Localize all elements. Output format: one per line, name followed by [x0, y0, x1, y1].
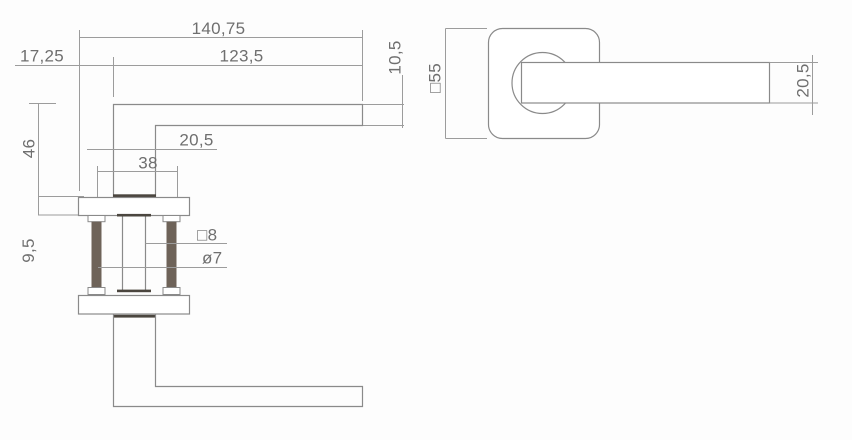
dim-screw-spacing-label: 38 [138, 154, 158, 173]
dim-rose-size-label: □55 [426, 63, 445, 93]
mounting-screw-left [88, 216, 105, 295]
dim-neck-width-label: 20,5 [179, 131, 213, 150]
dim-screw-spacing: 38 [98, 154, 178, 201]
dim-offset-and-lever-length: 17,25 123,5 [15, 47, 363, 66]
dim-offset-label: 17,25 [20, 47, 64, 66]
dim-bar-thickness-label: 10,5 [386, 40, 405, 74]
dim-rose-thickness-label: 9,5 [19, 238, 38, 263]
door-handle-technical-drawing: 140,75 17,25 123,5 10,5 46 9,5 [0, 0, 852, 440]
dim-bar-thickness: 10,5 [363, 40, 405, 128]
dim-rose-size: □55 [426, 29, 488, 139]
neck-plate-junction-bottom [113, 315, 156, 318]
technical-drawing-page: 140,75 17,25 123,5 10,5 46 9,5 [0, 0, 852, 440]
dim-height-to-rose-label: 46 [20, 139, 39, 159]
dim-neck-width: 20,5 [87, 131, 217, 150]
dim-lever-length-label: 123,5 [219, 47, 263, 66]
lower-lever-outline [114, 315, 363, 407]
mounting-screw-right [163, 216, 180, 295]
callout-spindle-square-label: □8 [197, 226, 217, 245]
callout-screw-diameter-label: ø7 [202, 249, 222, 268]
spindle [117, 214, 151, 292]
side-view: 140,75 17,25 123,5 10,5 46 9,5 [15, 19, 405, 407]
neck-plate-junction-top [113, 194, 156, 197]
dim-lever-width: 20,5 [770, 55, 819, 115]
dim-total-length-label: 140,75 [192, 19, 246, 38]
dim-lever-width-label: 20,5 [794, 63, 813, 97]
callout-screw-diameter: ø7 [98, 249, 227, 268]
lever-bar [522, 63, 770, 104]
dim-total-length: 140,75 [80, 19, 363, 38]
lever-outline [114, 105, 363, 198]
dim-height-chain: 46 9,5 [19, 104, 84, 263]
rose-plate-bottom [79, 296, 190, 315]
callout-spindle-square: □8 [146, 226, 228, 245]
front-view: □55 20,5 [426, 29, 819, 139]
rose-plate-top [79, 198, 190, 216]
